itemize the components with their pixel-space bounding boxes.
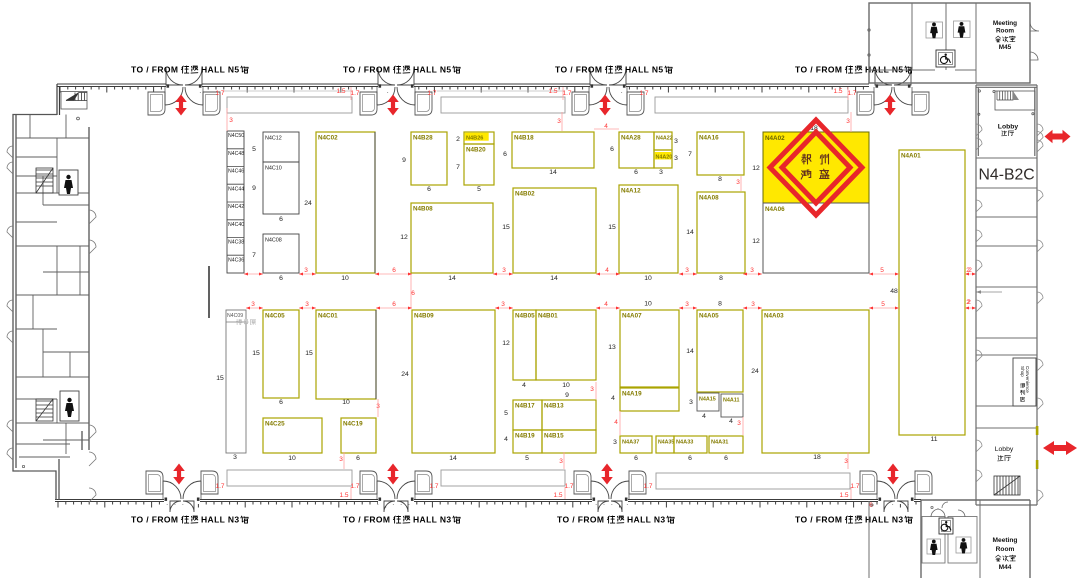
- svg-text:N4C48: N4C48: [228, 151, 244, 157]
- svg-text:N4C50: N4C50: [228, 133, 244, 139]
- svg-text:8: 8: [718, 176, 722, 183]
- svg-text:15: 15: [502, 224, 510, 231]
- svg-text:3: 3: [685, 301, 689, 308]
- svg-text:1.7: 1.7: [350, 90, 359, 97]
- svg-text:6: 6: [503, 151, 507, 158]
- svg-text:3: 3: [501, 301, 505, 308]
- svg-text:1.5: 1.5: [548, 88, 557, 95]
- svg-text:3: 3: [229, 117, 233, 124]
- svg-text:4: 4: [522, 382, 526, 389]
- svg-text:N4B02: N4B02: [515, 191, 535, 198]
- svg-text:TO / FROM: TO / FROM: [131, 65, 178, 75]
- svg-text:14: 14: [549, 169, 557, 176]
- svg-text:N4A01: N4A01: [901, 153, 921, 160]
- svg-text:1.5: 1.5: [339, 492, 348, 499]
- svg-text:N4B15: N4B15: [544, 433, 564, 440]
- svg-text:N4A33: N4A33: [676, 440, 693, 446]
- svg-text:1.7: 1.7: [215, 483, 224, 490]
- svg-text:24: 24: [751, 368, 759, 375]
- svg-text:12: 12: [502, 340, 510, 347]
- svg-text:N4A12: N4A12: [621, 188, 641, 195]
- svg-text:HALL N5: HALL N5: [201, 65, 240, 75]
- svg-text:N4C19: N4C19: [343, 421, 363, 428]
- svg-text:N4A06: N4A06: [765, 206, 785, 213]
- svg-text:3: 3: [689, 399, 693, 406]
- svg-text:4: 4: [604, 123, 608, 130]
- svg-text:N4C09: N4C09: [227, 313, 243, 319]
- svg-text:HALL N3: HALL N3: [413, 515, 452, 525]
- svg-text:Meeting: Meeting: [993, 20, 1017, 27]
- svg-text:12: 12: [400, 234, 408, 241]
- svg-text:2: 2: [456, 136, 460, 143]
- svg-text:9: 9: [565, 392, 569, 399]
- svg-text:5: 5: [504, 410, 508, 417]
- svg-text:HALL N3: HALL N3: [627, 515, 666, 525]
- svg-text:4: 4: [604, 301, 608, 308]
- svg-text:4: 4: [729, 418, 733, 425]
- svg-text:Room: Room: [996, 546, 1015, 553]
- svg-text:Shop: Shop: [1020, 366, 1025, 377]
- svg-text:15: 15: [608, 224, 616, 231]
- svg-text:1.7: 1.7: [639, 90, 648, 97]
- svg-text:M45: M45: [999, 44, 1012, 51]
- svg-text:3: 3: [559, 458, 563, 465]
- svg-text:10: 10: [341, 275, 349, 282]
- svg-text:N4C02: N4C02: [318, 135, 338, 142]
- svg-text:TO / FROM: TO / FROM: [555, 65, 602, 75]
- svg-text:6: 6: [356, 455, 360, 462]
- svg-text:N4A08: N4A08: [699, 195, 719, 202]
- svg-text:14: 14: [449, 455, 457, 462]
- svg-text:4: 4: [611, 395, 615, 402]
- svg-text:N4-B2C: N4-B2C: [979, 167, 1035, 184]
- svg-text:5: 5: [881, 301, 885, 308]
- svg-text:1.7: 1.7: [643, 483, 652, 490]
- svg-text:3: 3: [590, 386, 594, 393]
- svg-text:HALL N3: HALL N3: [201, 515, 240, 525]
- svg-text:N4A03: N4A03: [764, 313, 784, 320]
- svg-text:N4A11: N4A11: [723, 398, 739, 404]
- svg-text:9: 9: [402, 157, 406, 164]
- svg-text:11: 11: [930, 436, 937, 443]
- svg-text:Room: Room: [996, 28, 1014, 35]
- svg-text:N4A19: N4A19: [622, 391, 642, 398]
- svg-text:2: 2: [966, 299, 970, 306]
- svg-text:6: 6: [392, 267, 396, 274]
- svg-text:5: 5: [477, 186, 481, 193]
- svg-text:1.7: 1.7: [850, 483, 859, 490]
- svg-text:5: 5: [525, 455, 529, 462]
- svg-text:10: 10: [644, 275, 652, 282]
- svg-text:15: 15: [305, 350, 313, 357]
- svg-text:N4C44: N4C44: [228, 186, 244, 192]
- svg-text:6: 6: [279, 275, 283, 282]
- svg-text:5: 5: [880, 267, 884, 274]
- svg-text:N4C08: N4C08: [265, 238, 282, 244]
- svg-text:N4B09: N4B09: [414, 313, 434, 320]
- svg-text:4: 4: [614, 419, 618, 426]
- svg-text:3: 3: [557, 118, 561, 125]
- svg-text:2: 2: [966, 267, 970, 274]
- svg-text:1.7: 1.7: [564, 483, 573, 490]
- svg-text:TO / FROM: TO / FROM: [343, 65, 390, 75]
- svg-text:48: 48: [890, 288, 898, 295]
- svg-text:N4A37: N4A37: [622, 440, 639, 446]
- svg-text:3: 3: [674, 155, 678, 162]
- svg-text:N4B18: N4B18: [514, 135, 534, 142]
- svg-text:8: 8: [718, 301, 722, 308]
- svg-text:Meeting: Meeting: [993, 537, 1018, 544]
- svg-text:N4A15: N4A15: [699, 397, 716, 403]
- svg-text:HALL N5: HALL N5: [625, 65, 664, 75]
- svg-text:14: 14: [448, 275, 456, 282]
- svg-text:Lobby: Lobby: [998, 123, 1019, 130]
- svg-text:5: 5: [252, 146, 256, 153]
- svg-text:1.7: 1.7: [847, 90, 856, 97]
- svg-text:14: 14: [550, 275, 558, 282]
- svg-text:15: 15: [252, 350, 260, 357]
- svg-text:14: 14: [686, 229, 694, 236]
- svg-text:3: 3: [674, 138, 678, 145]
- svg-text:N4C38: N4C38: [228, 240, 244, 246]
- svg-text:1.5: 1.5: [553, 492, 562, 499]
- svg-text:24: 24: [401, 371, 409, 378]
- svg-text:N4C42: N4C42: [228, 204, 244, 210]
- svg-text:3: 3: [685, 267, 689, 274]
- svg-text:1.5: 1.5: [833, 88, 842, 95]
- svg-text:14: 14: [686, 348, 694, 355]
- svg-text:1.7: 1.7: [350, 483, 359, 490]
- svg-text:N4C25: N4C25: [265, 421, 285, 428]
- svg-text:Lobby: Lobby: [995, 446, 1014, 453]
- svg-text:3: 3: [844, 458, 848, 465]
- svg-text:N4C40: N4C40: [228, 222, 244, 228]
- svg-text:6: 6: [634, 455, 638, 462]
- svg-text:N4A20: N4A20: [656, 155, 673, 161]
- svg-text:N4B13: N4B13: [544, 403, 564, 410]
- svg-text:M44: M44: [999, 564, 1012, 571]
- svg-text:TO / FROM: TO / FROM: [131, 515, 178, 525]
- svg-text:6: 6: [411, 290, 415, 297]
- svg-text:HALL N5: HALL N5: [413, 65, 452, 75]
- svg-text:N4A35: N4A35: [658, 440, 674, 446]
- svg-text:TO / FROM: TO / FROM: [795, 515, 842, 525]
- svg-text:3: 3: [751, 301, 755, 308]
- svg-text:N4A02: N4A02: [765, 135, 785, 142]
- svg-text:TO / FROM: TO / FROM: [557, 515, 604, 525]
- svg-text:12: 12: [752, 165, 760, 172]
- svg-text:TO / FROM: TO / FROM: [795, 65, 842, 75]
- svg-text:6: 6: [427, 186, 431, 193]
- svg-text:N4B26: N4B26: [466, 136, 483, 142]
- svg-text:3: 3: [846, 118, 850, 125]
- svg-text:10: 10: [644, 301, 652, 308]
- svg-text:1.5: 1.5: [336, 88, 345, 95]
- svg-text:6: 6: [634, 169, 638, 176]
- svg-text:1.7: 1.7: [429, 483, 438, 490]
- svg-text:7: 7: [252, 252, 256, 259]
- svg-text:13: 13: [608, 344, 616, 351]
- svg-text:1.7: 1.7: [427, 90, 436, 97]
- svg-text:N4C12: N4C12: [265, 136, 282, 142]
- svg-text:6: 6: [392, 301, 396, 308]
- svg-text:18: 18: [813, 454, 821, 461]
- svg-text:8: 8: [719, 275, 723, 282]
- svg-text:N4B05: N4B05: [515, 313, 535, 320]
- svg-text:6: 6: [724, 455, 728, 462]
- svg-text:N4A31: N4A31: [711, 440, 728, 446]
- svg-text:3: 3: [305, 301, 309, 308]
- svg-text:10: 10: [562, 382, 570, 389]
- svg-text:N4C36: N4C36: [228, 257, 244, 263]
- svg-text:3: 3: [613, 439, 617, 446]
- svg-text:3: 3: [736, 179, 740, 186]
- svg-text:10: 10: [342, 399, 350, 406]
- svg-text:7: 7: [456, 164, 460, 171]
- svg-text:12: 12: [752, 238, 760, 245]
- svg-text:24: 24: [304, 200, 312, 207]
- svg-text:N4A22: N4A22: [656, 136, 673, 142]
- svg-text:4: 4: [605, 267, 609, 274]
- svg-text:1.5: 1.5: [839, 492, 848, 499]
- svg-text:N4C05: N4C05: [265, 313, 285, 320]
- svg-text:10: 10: [288, 455, 296, 462]
- svg-text:6: 6: [279, 399, 283, 406]
- svg-text:N4B19: N4B19: [515, 433, 535, 440]
- svg-text:3: 3: [750, 267, 754, 274]
- svg-text:7: 7: [688, 151, 692, 158]
- svg-text:N4B01: N4B01: [538, 313, 558, 320]
- svg-text:3: 3: [251, 301, 255, 308]
- svg-text:6: 6: [688, 455, 692, 462]
- svg-text:1.7: 1.7: [215, 90, 224, 97]
- svg-text:3: 3: [339, 456, 343, 463]
- svg-text:N4A05: N4A05: [699, 313, 719, 320]
- svg-text:TO / FROM: TO / FROM: [343, 515, 390, 525]
- svg-text:HALL N3: HALL N3: [865, 515, 904, 525]
- svg-text:N4C46: N4C46: [228, 169, 244, 175]
- svg-text:4: 4: [504, 436, 508, 443]
- svg-text:N4B28: N4B28: [413, 135, 433, 142]
- svg-text:4: 4: [702, 413, 706, 420]
- svg-text:15: 15: [216, 375, 224, 382]
- svg-text:3: 3: [659, 169, 663, 176]
- svg-text:6: 6: [610, 146, 614, 153]
- svg-text:1.7: 1.7: [562, 90, 571, 97]
- svg-text:N4C01: N4C01: [318, 313, 338, 320]
- svg-text:3: 3: [737, 420, 741, 427]
- svg-text:N4B20: N4B20: [466, 147, 486, 154]
- svg-text:N4B08: N4B08: [413, 206, 433, 213]
- svg-text:3: 3: [304, 267, 308, 274]
- svg-text:N4C10: N4C10: [265, 166, 282, 172]
- svg-text:9: 9: [252, 185, 256, 192]
- svg-text:N4B17: N4B17: [515, 403, 535, 410]
- svg-text:N4A16: N4A16: [699, 135, 719, 142]
- svg-text:6: 6: [279, 216, 283, 223]
- svg-text:3: 3: [502, 267, 506, 274]
- svg-text:N4A28: N4A28: [621, 135, 641, 142]
- svg-text:3: 3: [233, 454, 237, 461]
- svg-text:N4A07: N4A07: [622, 313, 642, 320]
